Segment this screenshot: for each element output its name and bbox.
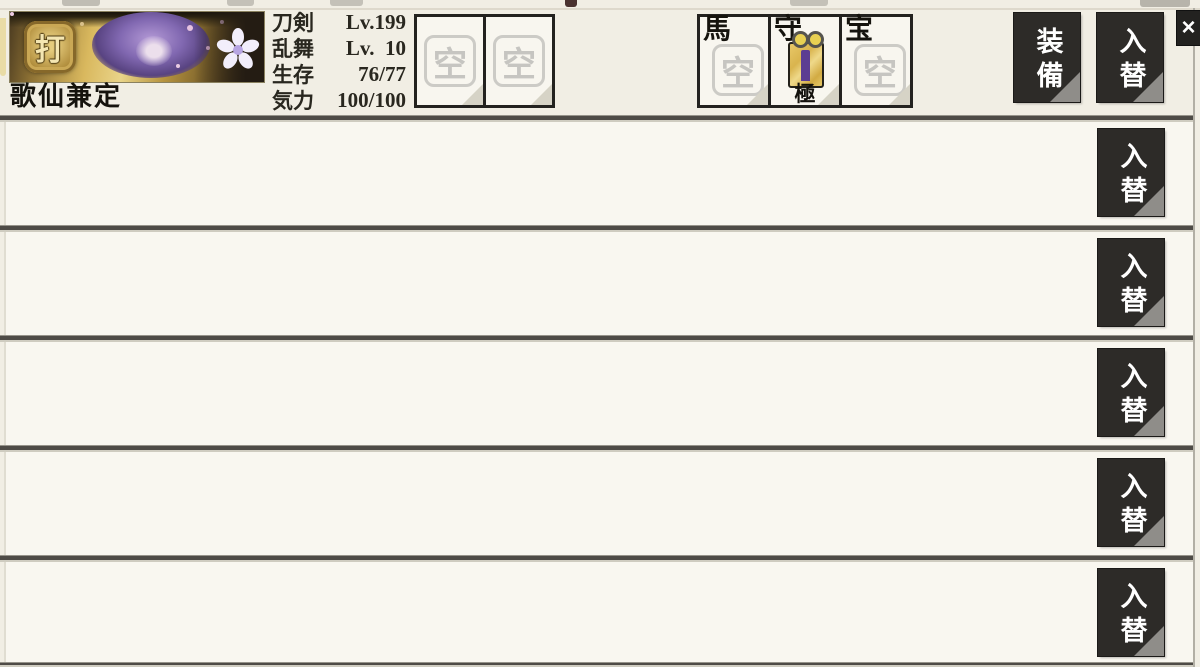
fold-corner <box>889 84 910 105</box>
swap-button[interactable]: 入替 <box>1098 349 1164 436</box>
close-icon: × <box>1181 14 1195 42</box>
row-separator <box>0 115 1193 122</box>
sword-type-label: 打 <box>35 25 65 69</box>
stats-panel: 刀剣 Lv.199 乱舞 Lv. 10 生存 76/77 気力 100/100 <box>272 9 406 113</box>
swap-button[interactable]: 入替 <box>1097 13 1163 102</box>
party-equipment-screen: 打 歌仙兼定 刀剣 Lv.199 乱舞 Lv. 10 生存 76/77 気力 1… <box>0 0 1200 667</box>
row-separator <box>0 225 1193 232</box>
equip-button[interactable]: 装備 <box>1014 13 1080 102</box>
party-slot-row: 入替 <box>4 452 1193 555</box>
party-slot-row: 入替 <box>4 562 1193 662</box>
background-peek <box>62 0 100 6</box>
swap-button[interactable]: 入替 <box>1098 129 1164 216</box>
fold-corner <box>462 84 483 105</box>
empty-glyph: 空 <box>493 35 545 87</box>
row-separator <box>0 335 1193 342</box>
stat-row: 気力 100/100 <box>272 87 406 113</box>
fold-corner <box>1134 516 1164 546</box>
sword-type-badge: 打 <box>24 21 76 73</box>
party-slot-row: 入替 <box>4 342 1193 445</box>
fold-corner <box>1050 72 1080 102</box>
close-button[interactable]: × <box>1177 11 1200 45</box>
sakura-petals-decoration <box>10 12 14 16</box>
horse-charm-treasure-group: 馬 空 守 極 宝 空 <box>697 14 913 108</box>
row-separator <box>0 555 1193 562</box>
swap-button[interactable]: 入替 <box>1098 459 1164 546</box>
background-peek <box>1140 0 1190 7</box>
stat-value: Lv.199 <box>346 10 406 35</box>
stat-row: 乱舞 Lv. 10 <box>272 35 406 61</box>
swap-button[interactable]: 入替 <box>1098 569 1164 656</box>
fold-corner <box>1134 186 1164 216</box>
fold-corner <box>1134 406 1164 436</box>
background-peek <box>227 0 254 6</box>
fold-corner <box>1134 296 1164 326</box>
background-peek <box>0 18 6 76</box>
background-peek <box>565 0 577 7</box>
stat-value: 76/77 <box>358 62 406 87</box>
background-peek <box>330 0 363 6</box>
omamori-stripe <box>801 50 810 81</box>
treasure-slot[interactable]: 宝 空 <box>839 14 913 108</box>
row-separator <box>0 662 1193 667</box>
stat-row: 刀剣 Lv.199 <box>272 9 406 35</box>
fold-corner <box>1133 72 1163 102</box>
fold-corner <box>1134 626 1164 656</box>
character-banner[interactable]: 打 <box>10 12 264 82</box>
horse-slot-label: 馬 <box>703 14 731 46</box>
stat-label: 気力 <box>272 85 314 115</box>
background-peek <box>790 0 828 6</box>
sakura-icon <box>216 28 260 72</box>
row-separator <box>0 445 1193 452</box>
fold-corner <box>818 84 839 105</box>
fold-corner <box>531 84 552 105</box>
stat-value: 100/100 <box>337 88 406 113</box>
character-portrait-face <box>136 36 172 66</box>
fold-corner <box>747 84 768 105</box>
swap-button[interactable]: 入替 <box>1098 239 1164 326</box>
empty-glyph: 空 <box>424 35 476 87</box>
stat-value: Lv. 10 <box>346 36 406 61</box>
troop-slot-group: 空 空 <box>414 14 555 108</box>
troop-slot-empty[interactable]: 空 <box>483 14 555 108</box>
party-slot-row: 入替 <box>4 122 1193 225</box>
troop-slot-empty[interactable]: 空 <box>414 14 486 108</box>
treasure-slot-label: 宝 <box>845 14 873 46</box>
horse-slot[interactable]: 馬 空 <box>697 14 771 108</box>
stat-row: 生存 76/77 <box>272 61 406 87</box>
omamori-knot <box>792 31 824 48</box>
character-name: 歌仙兼定 <box>10 82 122 112</box>
panel-right-edge <box>1193 8 1195 667</box>
party-slot-row: 入替 <box>4 232 1193 335</box>
panel-top-edge <box>0 8 1200 10</box>
omamori-slot[interactable]: 守 極 <box>768 14 842 108</box>
